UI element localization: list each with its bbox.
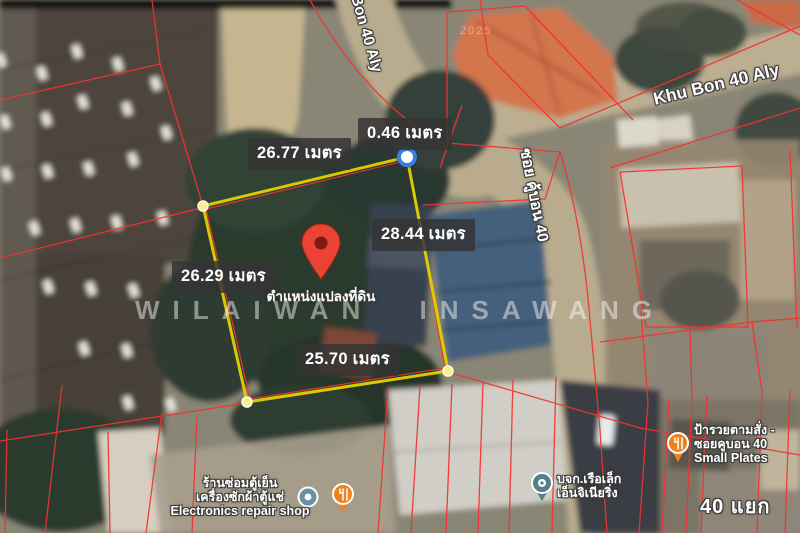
poi-line: เอ็นจิเนียริ่ง [557,487,621,501]
satellite-map-canvas[interactable]: 26.77 เมตร 0.46 เมตร 28.44 เมตร 26.29 เม… [0,0,800,533]
measurement-label-corner: 0.46 เมตร [358,118,452,150]
vertex-dot[interactable] [198,201,208,211]
poi-label-electronics-repair-shop[interactable]: ร้านซ่อมตู้เย็น เครื่องซักผ้าตู้แช่ Elec… [160,477,320,518]
poi-label-small-plates[interactable]: ป้ารวยตามสั่ง - ซอยคูบอน 40 Small Plates [694,424,775,465]
poi-line: เครื่องซักผ้าตู้แช่ [160,491,320,505]
poi-line: ร้านซ่อมตู้เย็น [160,477,320,491]
measurement-label-top: 26.77 เมตร [248,138,351,170]
poi-line: Small Plates [694,452,775,466]
vertex-dot[interactable] [242,397,252,407]
poi-line: ป้ารวยตามสั่ง - [694,424,775,438]
measurement-label-left: 26.29 เมตร [172,261,275,293]
imagery-year-watermark: 2025 [460,25,492,37]
measurement-label-right: 28.44 เมตร [372,219,475,251]
poi-label-ruea-lek-engineering[interactable]: บจก.เรือเล็ก เอ็นจิเนียริ่ง [557,473,621,501]
poi-line: Electronics repair shop [160,505,320,519]
active-vertex-marker[interactable] [399,149,415,165]
junction-label-40-yaek: 40 แยก [700,490,771,522]
vertex-dot[interactable] [443,366,453,376]
measurement-label-bottom: 25.70 เมตร [296,344,399,376]
map-graphics [0,0,800,533]
poi-line: ซอยคูบอน 40 [694,438,775,452]
poi-line: บจก.เรือเล็ก [557,473,621,487]
photographer-watermark: WILAIWAN INSAWANG [0,295,800,326]
